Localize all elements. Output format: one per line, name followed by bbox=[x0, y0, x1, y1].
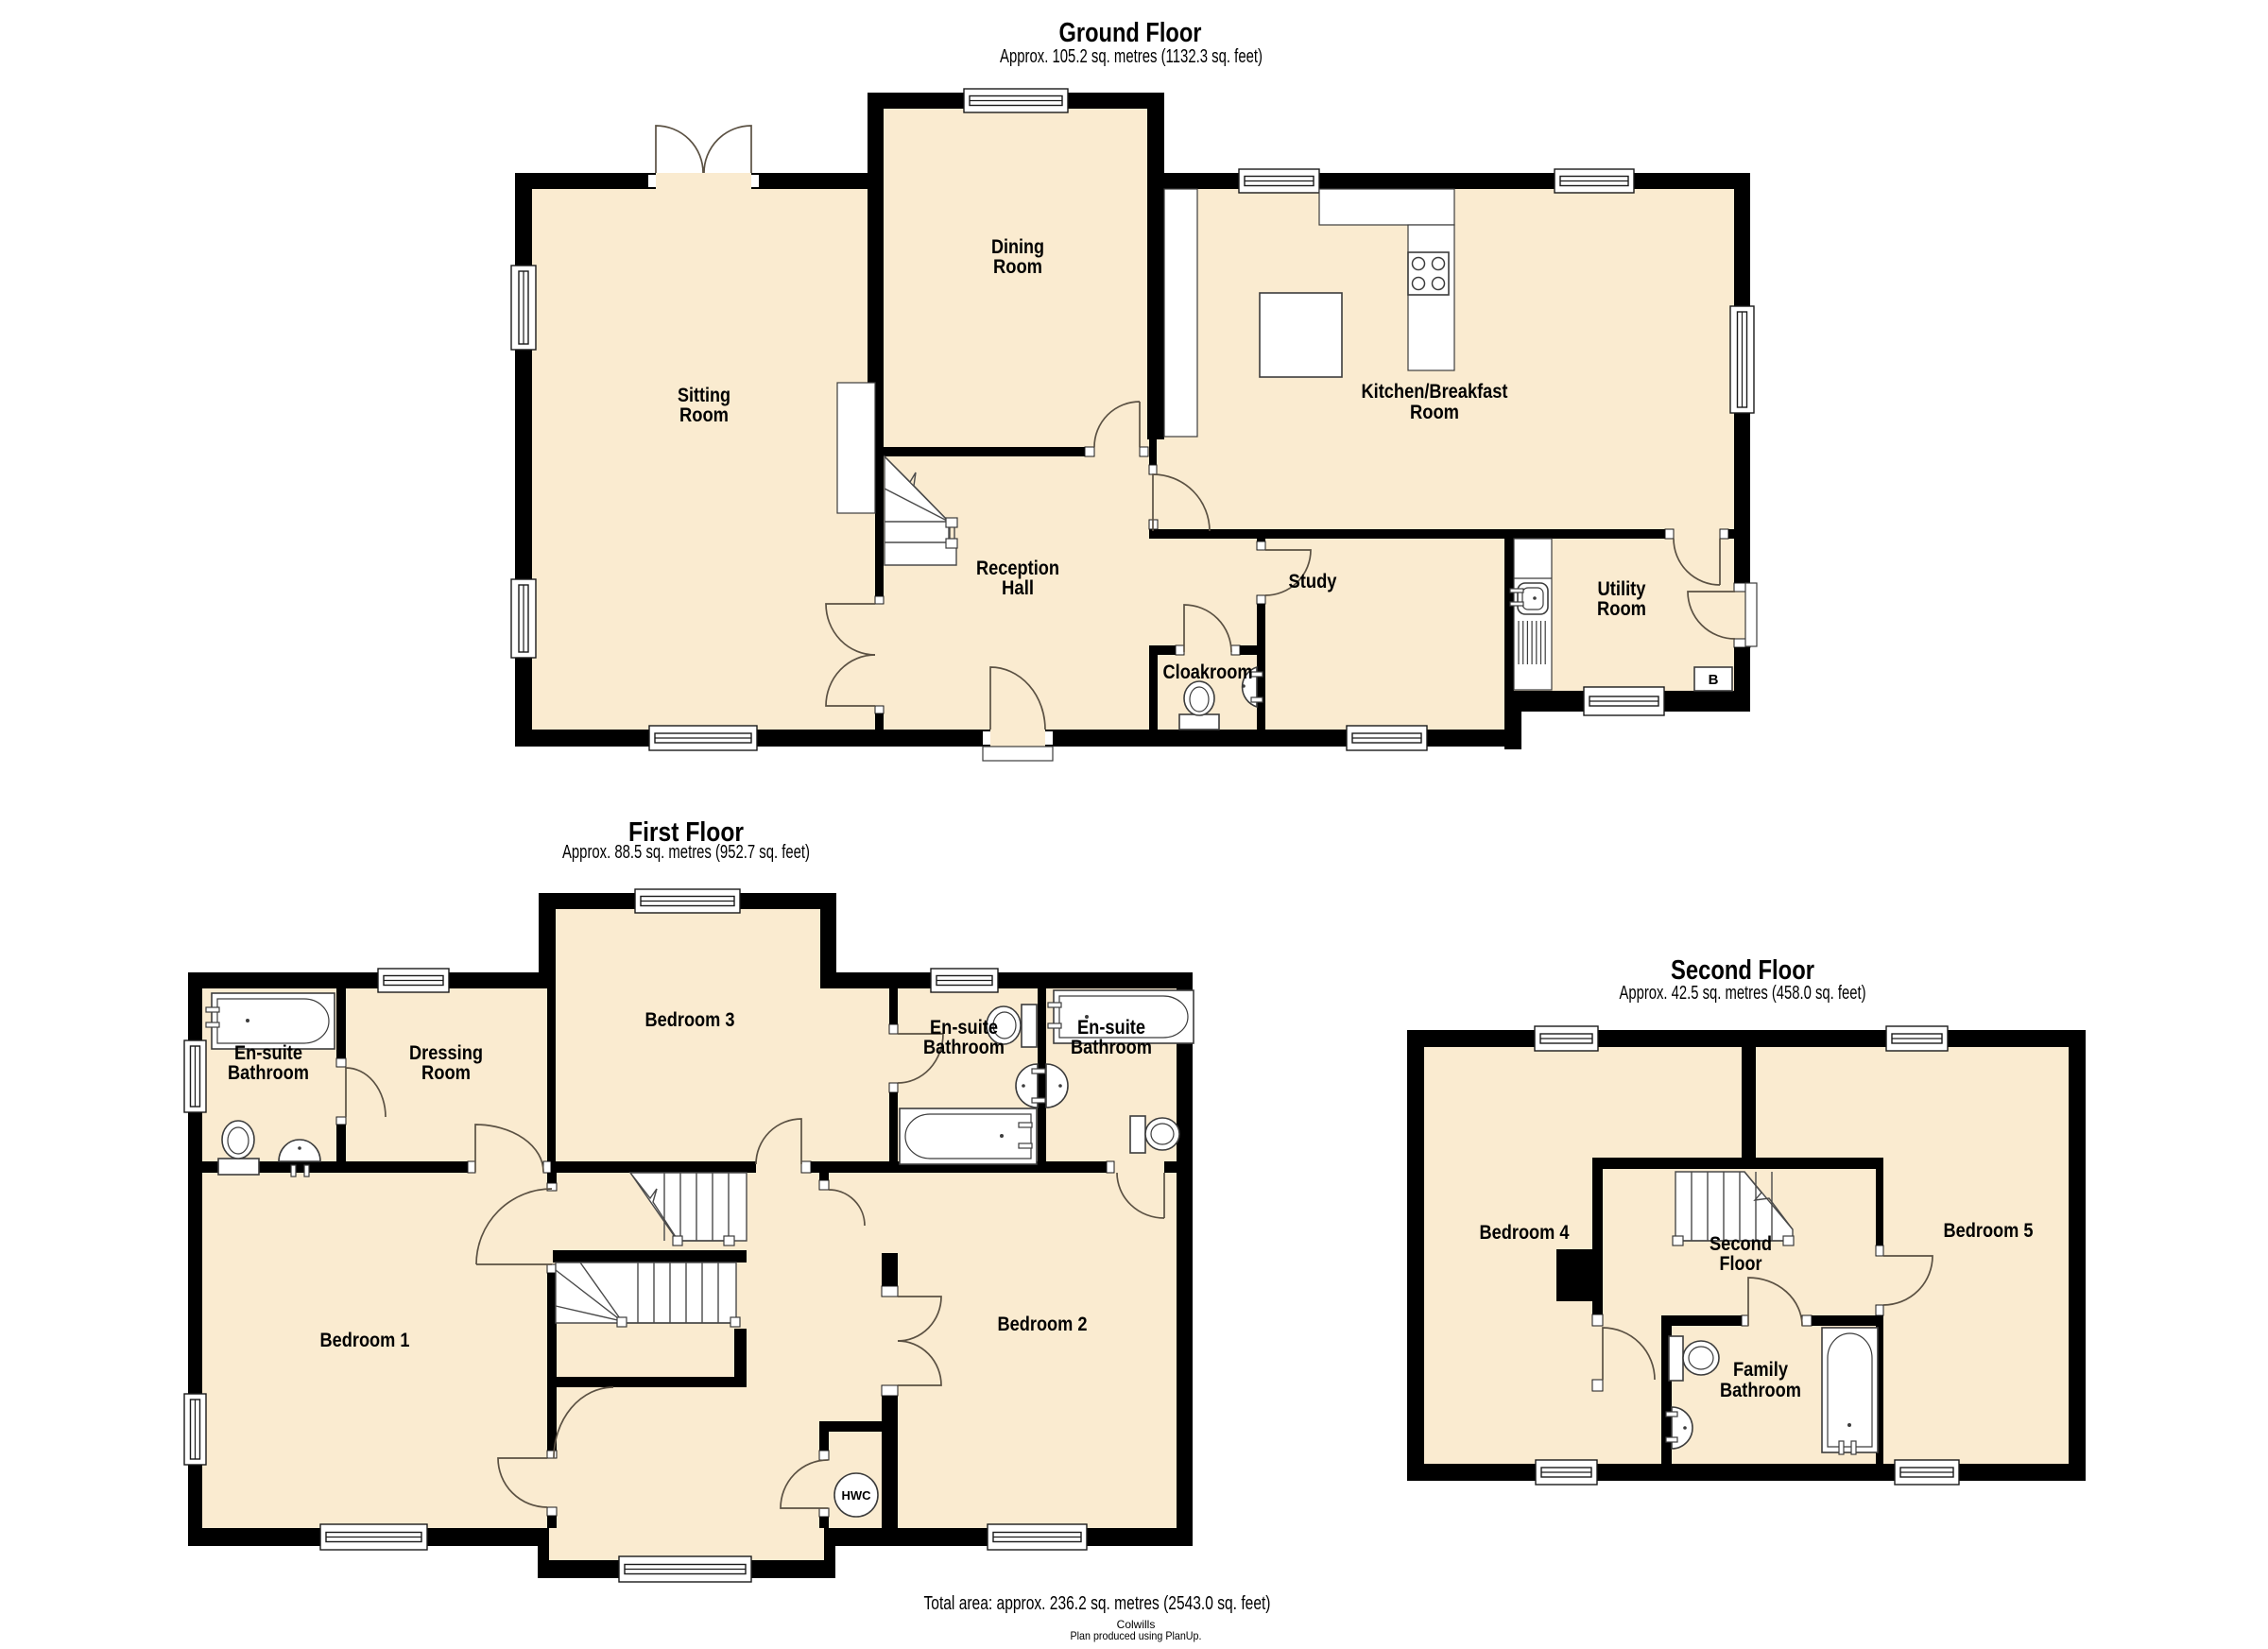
svg-text:Bedroom 4: Bedroom 4 bbox=[1480, 1222, 1570, 1244]
svg-text:Room: Room bbox=[1410, 402, 1459, 423]
svg-text:Approx. 88.5 sq. metres (952.7: Approx. 88.5 sq. metres (952.7 sq. feet) bbox=[562, 842, 810, 863]
svg-text:Room: Room bbox=[1597, 598, 1646, 620]
svg-text:Room: Room bbox=[679, 404, 729, 426]
svg-text:Bedroom 1: Bedroom 1 bbox=[320, 1330, 410, 1351]
svg-text:Total area: approx. 236.2 sq.: Total area: approx. 236.2 sq. metres (25… bbox=[924, 1593, 1271, 1614]
svg-text:En-suite: En-suite bbox=[1077, 1017, 1145, 1039]
svg-text:Bedroom 2: Bedroom 2 bbox=[998, 1314, 1088, 1335]
svg-text:Bathroom: Bathroom bbox=[1720, 1380, 1801, 1401]
svg-text:En-suite: En-suite bbox=[234, 1042, 302, 1064]
svg-text:Bedroom 3: Bedroom 3 bbox=[645, 1009, 735, 1031]
svg-text:Family: Family bbox=[1733, 1359, 1788, 1381]
svg-text:Dressing: Dressing bbox=[409, 1042, 483, 1064]
svg-text:Approx. 42.5 sq. metres (458.0: Approx. 42.5 sq. metres (458.0 sq. feet) bbox=[1620, 983, 1866, 1004]
svg-text:HWC: HWC bbox=[841, 1488, 871, 1503]
svg-text:Hall: Hall bbox=[1002, 577, 1034, 599]
svg-text:Floor: Floor bbox=[1720, 1253, 1762, 1275]
svg-text:Bathroom: Bathroom bbox=[923, 1037, 1005, 1058]
svg-text:Room: Room bbox=[421, 1062, 471, 1084]
svg-text:Plan produced using PlanUp.: Plan produced using PlanUp. bbox=[1071, 1629, 1202, 1642]
svg-text:En-suite: En-suite bbox=[930, 1017, 998, 1039]
svg-text:Dining: Dining bbox=[991, 236, 1044, 258]
svg-text:Utility: Utility bbox=[1598, 578, 1646, 600]
svg-text:Cloakroom: Cloakroom bbox=[1163, 661, 1253, 683]
svg-text:Second Floor: Second Floor bbox=[1671, 955, 1814, 986]
svg-text:Bathroom: Bathroom bbox=[1071, 1037, 1152, 1058]
svg-text:Second: Second bbox=[1710, 1233, 1772, 1255]
svg-text:Approx. 105.2 sq. metres (1132: Approx. 105.2 sq. metres (1132.3 sq. fee… bbox=[1000, 46, 1263, 67]
svg-text:Sitting: Sitting bbox=[678, 385, 730, 406]
svg-text:Kitchen/Breakfast: Kitchen/Breakfast bbox=[1362, 381, 1508, 403]
svg-text:Room: Room bbox=[993, 256, 1042, 278]
svg-text:Bedroom 5: Bedroom 5 bbox=[1944, 1220, 2034, 1242]
svg-text:Ground Floor: Ground Floor bbox=[1059, 18, 1202, 48]
svg-text:Study: Study bbox=[1289, 571, 1337, 593]
svg-text:Reception: Reception bbox=[976, 558, 1059, 579]
svg-text:Bathroom: Bathroom bbox=[228, 1062, 309, 1084]
svg-text:B: B bbox=[1709, 672, 1719, 688]
